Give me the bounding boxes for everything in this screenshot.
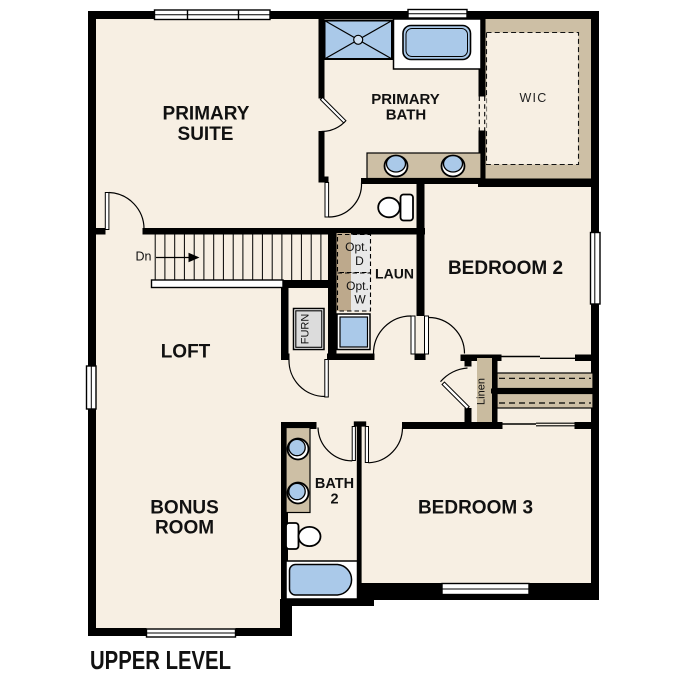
svg-text:D: D	[355, 254, 364, 268]
svg-text:Linen: Linen	[476, 378, 488, 405]
svg-text:ROOM: ROOM	[155, 518, 214, 539]
svg-text:BEDROOM 2: BEDROOM 2	[448, 258, 563, 279]
svg-text:LAUN: LAUN	[375, 266, 414, 282]
svg-text:Dn: Dn	[136, 250, 152, 264]
svg-text:W: W	[354, 293, 366, 307]
svg-text:Opt.: Opt.	[346, 279, 369, 293]
svg-text:WIC: WIC	[520, 91, 548, 105]
svg-text:BEDROOM 3: BEDROOM 3	[418, 498, 533, 519]
svg-text:BONUS: BONUS	[150, 498, 219, 519]
svg-text:Opt.: Opt.	[345, 240, 368, 254]
svg-text:SUITE: SUITE	[178, 124, 234, 145]
svg-text:BATH: BATH	[386, 107, 427, 124]
svg-text:LOFT: LOFT	[161, 342, 211, 363]
svg-text:PRIMARY: PRIMARY	[163, 104, 250, 125]
svg-text:UPPER LEVEL: UPPER LEVEL	[90, 645, 231, 675]
svg-text:BATH: BATH	[315, 476, 354, 492]
svg-text:2: 2	[330, 492, 338, 508]
svg-text:PRIMARY: PRIMARY	[371, 91, 440, 108]
svg-text:FURN: FURN	[300, 314, 312, 345]
